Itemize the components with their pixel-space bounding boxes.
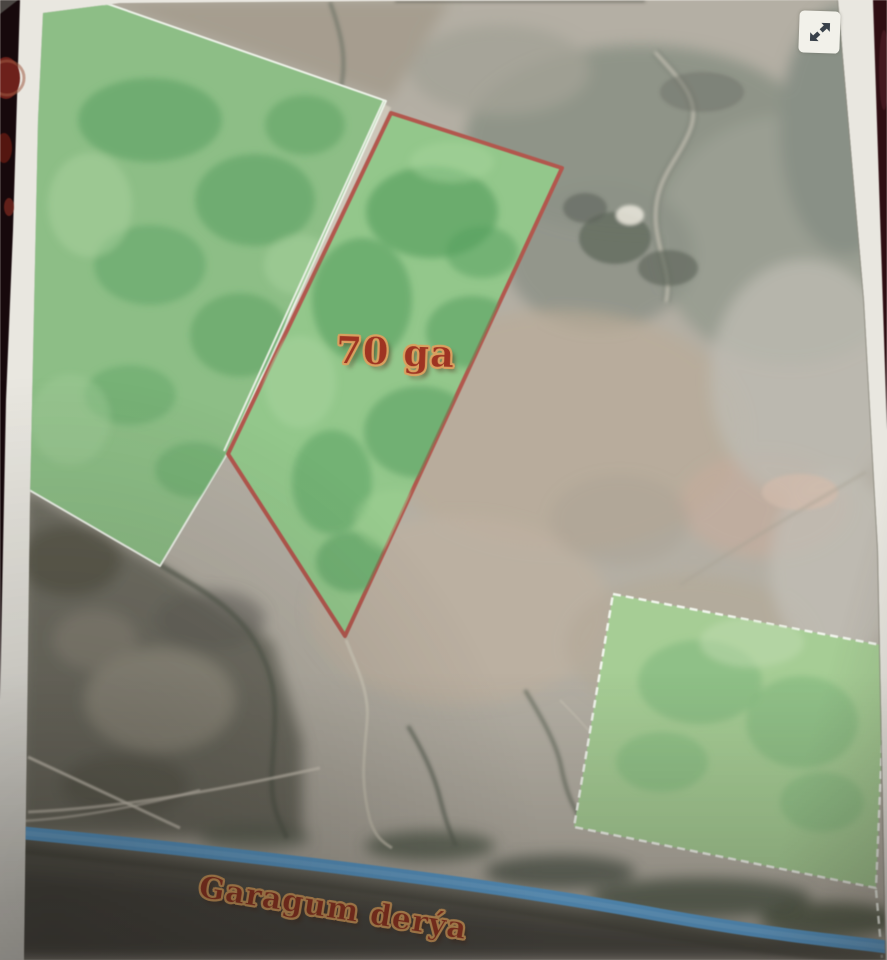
map-photo: 70 ga Garagum derýa [0,0,887,960]
satellite-map-image [0,0,887,960]
expand-arrows-icon [806,19,833,46]
parcel-area-label: 70 ga [335,328,456,377]
map-tool-button[interactable] [798,10,840,53]
map-content [0,0,887,960]
